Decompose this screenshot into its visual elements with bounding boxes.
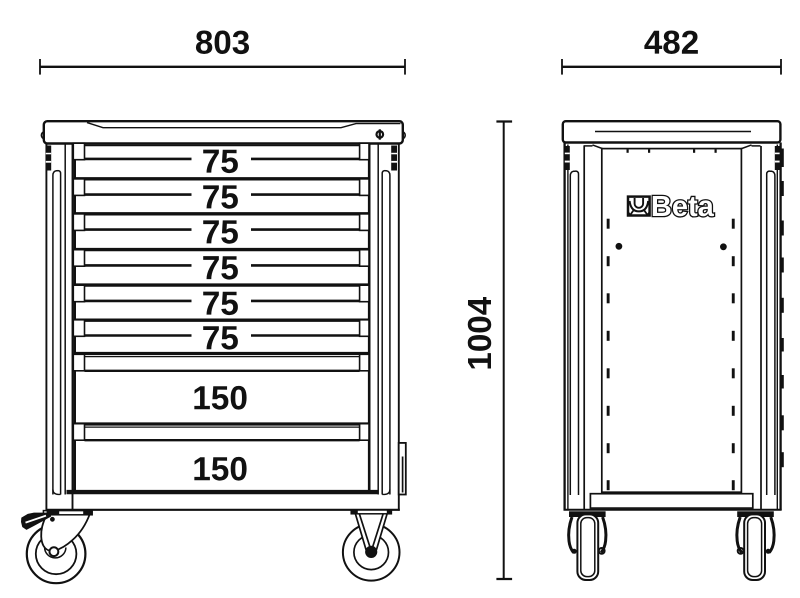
svg-text:75: 75: [202, 250, 239, 287]
svg-text:150: 150: [192, 451, 248, 488]
svg-text:482: 482: [644, 25, 699, 62]
svg-text:75: 75: [202, 144, 239, 181]
svg-text:75: 75: [202, 179, 239, 216]
svg-text:75: 75: [202, 214, 239, 251]
svg-text:75: 75: [202, 320, 239, 357]
svg-text:803: 803: [195, 25, 250, 62]
svg-text:150: 150: [192, 380, 248, 417]
svg-text:75: 75: [202, 286, 239, 323]
svg-text:Beta: Beta: [651, 191, 715, 223]
svg-text:1004: 1004: [462, 296, 499, 370]
